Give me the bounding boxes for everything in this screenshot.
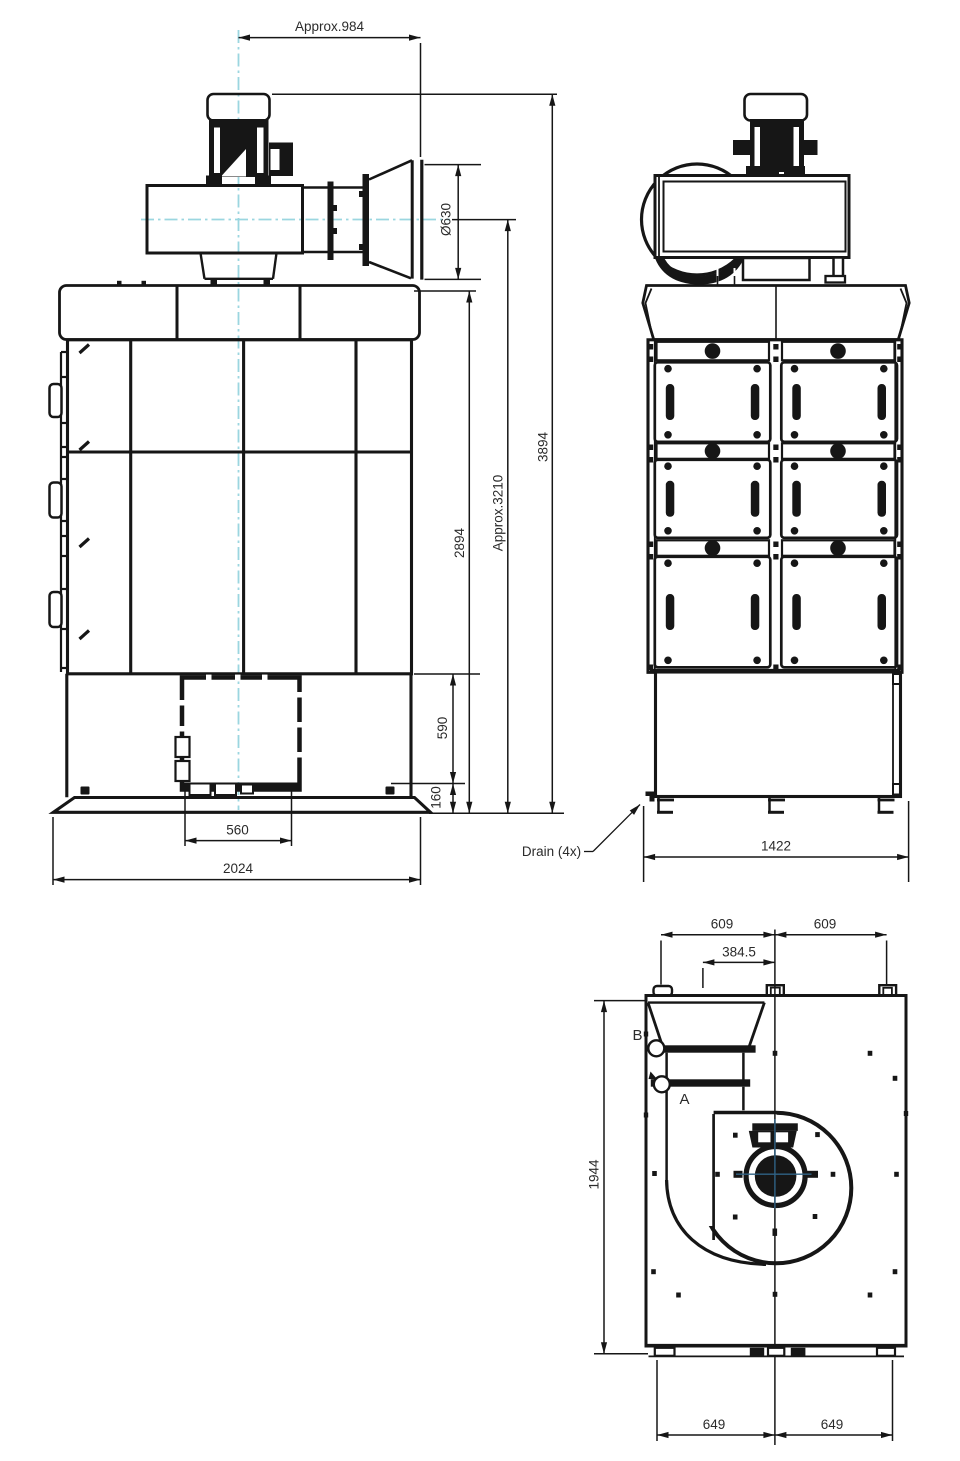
- svg-text:1944: 1944: [587, 1159, 602, 1190]
- svg-text:590: 590: [435, 717, 450, 740]
- svg-text:2024: 2024: [223, 861, 254, 876]
- svg-text:649: 649: [821, 1417, 844, 1432]
- svg-text:A: A: [679, 1091, 689, 1108]
- svg-text:Approx.984: Approx.984: [295, 19, 365, 34]
- svg-text:Drain (4x): Drain (4x): [522, 844, 581, 859]
- svg-text:160: 160: [429, 786, 444, 809]
- svg-text:384.5: 384.5: [722, 944, 756, 959]
- svg-text:B: B: [632, 1027, 642, 1044]
- svg-text:Approx.3210: Approx.3210: [491, 475, 506, 552]
- svg-text:2894: 2894: [452, 527, 467, 558]
- svg-text:3894: 3894: [536, 431, 551, 462]
- svg-text:Ø630: Ø630: [439, 203, 454, 236]
- svg-text:609: 609: [711, 917, 734, 932]
- svg-text:609: 609: [814, 917, 837, 932]
- svg-text:560: 560: [226, 823, 249, 838]
- svg-text:649: 649: [703, 1417, 726, 1432]
- svg-text:1422: 1422: [761, 839, 791, 854]
